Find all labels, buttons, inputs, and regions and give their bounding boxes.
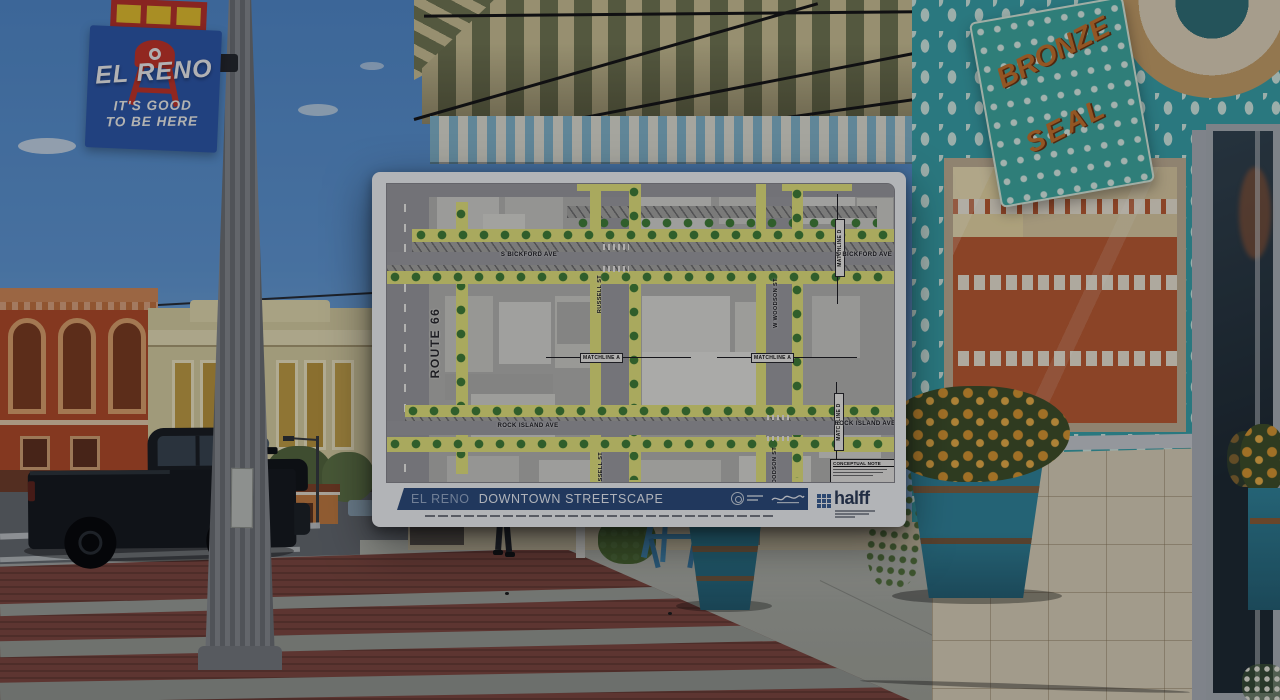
russell-label-upper: RUSSELL ST xyxy=(595,266,605,322)
glass-door xyxy=(1206,124,1280,700)
matchline-a-label: MATCHLINE A xyxy=(751,353,794,363)
leg xyxy=(495,524,503,550)
cloud xyxy=(298,104,338,116)
crosswalk-marking xyxy=(603,244,629,250)
concrete-band xyxy=(0,625,790,658)
conceptual-note-box: CONCEPTUAL NOTE xyxy=(830,459,895,483)
front-bumper xyxy=(294,503,310,535)
street-trees xyxy=(389,438,892,451)
white-flowers xyxy=(1242,664,1280,700)
crosswalk-marking xyxy=(603,266,629,272)
bickford-label-right: S BICKFORD AVE xyxy=(835,252,893,258)
pickup-truck xyxy=(19,423,320,574)
plan-title: EL RENO DOWNTOWN STREETSCAPE xyxy=(411,488,663,510)
woodson-label-lower: WOODSON ST xyxy=(770,440,780,483)
russell-label-lower: RUSSELL ST xyxy=(596,443,606,483)
post-plaque xyxy=(231,468,254,528)
pot-band xyxy=(916,538,1038,544)
arch-window xyxy=(58,318,96,414)
plan-title-prefix: EL RENO xyxy=(411,492,470,506)
bronze-seal-sign: BRONZE SEAL xyxy=(969,0,1155,208)
taillight xyxy=(28,481,35,501)
conceptual-note-title: CONCEPTUAL NOTE xyxy=(833,461,895,467)
pot-band xyxy=(694,576,756,581)
crosswalk-marking xyxy=(767,415,792,420)
sandal xyxy=(493,550,503,555)
concrete-band xyxy=(0,667,890,700)
glass-glare xyxy=(953,167,1177,423)
banner-header-tile xyxy=(146,6,171,25)
plan-title-main: DOWNTOWN STREETSCAPE xyxy=(479,492,664,506)
window-pillar xyxy=(195,436,199,466)
lamp-post-base xyxy=(198,646,282,670)
note-text-line xyxy=(833,472,883,473)
rock-island-label: ROCK ISLAND AVE xyxy=(493,423,563,429)
banner-header-tile xyxy=(176,7,201,26)
woodson-label-mid: W WOODSON ST xyxy=(771,275,781,331)
street-trees xyxy=(389,271,892,284)
rock-island-road xyxy=(387,421,894,435)
concrete-band xyxy=(0,586,700,616)
banner-tagline-1: IT'S GOOD xyxy=(87,97,219,113)
rear-rim xyxy=(78,531,102,555)
matchline-a-label: MATCHLINE A xyxy=(580,353,623,363)
pot-band xyxy=(690,546,760,552)
sandal xyxy=(505,552,515,557)
halff-wordmark: halff xyxy=(834,488,870,509)
halff-address-line xyxy=(835,513,869,515)
right-edge-pot xyxy=(1248,488,1280,610)
route66-label: ROUTE 66 xyxy=(427,303,443,383)
banner-header-tile xyxy=(116,4,141,23)
parking-hatch xyxy=(412,242,894,252)
note-text-line xyxy=(833,469,887,470)
street-trees xyxy=(415,229,891,242)
banner-tagline-2: TO BE HERE xyxy=(86,113,218,129)
streetscape-highlight xyxy=(577,184,635,191)
halff-address-line xyxy=(835,510,875,512)
bickford-road xyxy=(387,252,894,265)
arch-window xyxy=(8,318,46,414)
street-photo-scene: EL RENO IT'S GOOD TO BE HERE BRONZE SEAL xyxy=(0,0,1280,700)
rock-island-label-right: ROCK ISLAND AVE xyxy=(834,421,895,427)
pedestrian xyxy=(492,524,516,558)
map-building xyxy=(499,302,551,364)
city-seal-icon xyxy=(731,492,744,505)
debris-speck xyxy=(668,612,672,615)
halff-address-line xyxy=(835,516,855,518)
map-building xyxy=(445,296,493,372)
signature-logo xyxy=(771,492,805,506)
map-building xyxy=(812,296,860,358)
cornice xyxy=(0,288,158,302)
pot-band xyxy=(1250,518,1280,524)
aerial-plan-map: MATCHLINE A MATCHLINE A MATCHLINE D MATC… xyxy=(386,183,895,483)
seal-caption-line xyxy=(747,495,763,497)
seal-inner-dot xyxy=(735,496,742,503)
matchline-d-label: MATCHLINE D xyxy=(835,219,845,277)
halff-logo: halff xyxy=(817,490,893,520)
window-gold xyxy=(332,360,354,450)
plan-title-bar: EL RENO DOWNTOWN STREETSCAPE xyxy=(397,488,808,510)
disclaimer-text-line xyxy=(425,515,775,517)
streetscape-plan-sheet: MATCHLINE A MATCHLINE A MATCHLINE D MATC… xyxy=(372,172,906,527)
bickford-label: S BICKFORD AVE xyxy=(499,252,559,258)
pot-band xyxy=(908,486,1044,493)
debris-speck xyxy=(505,592,509,595)
seal-caption-line xyxy=(747,499,758,501)
distant-truck xyxy=(348,500,374,516)
note-text-line xyxy=(833,475,873,476)
map-building xyxy=(637,460,721,482)
cloud xyxy=(18,138,76,154)
chrysanthemums-right xyxy=(1240,424,1280,494)
cloud xyxy=(360,62,384,70)
dentil-band xyxy=(0,302,158,310)
chair-seat xyxy=(646,534,698,539)
halff-grid-icon xyxy=(817,494,831,508)
chair-leg xyxy=(648,538,660,568)
leg xyxy=(504,526,512,552)
door-jamb xyxy=(1192,130,1206,700)
arch-window xyxy=(108,318,146,414)
street-banner: EL RENO IT'S GOOD TO BE HERE xyxy=(85,0,224,155)
